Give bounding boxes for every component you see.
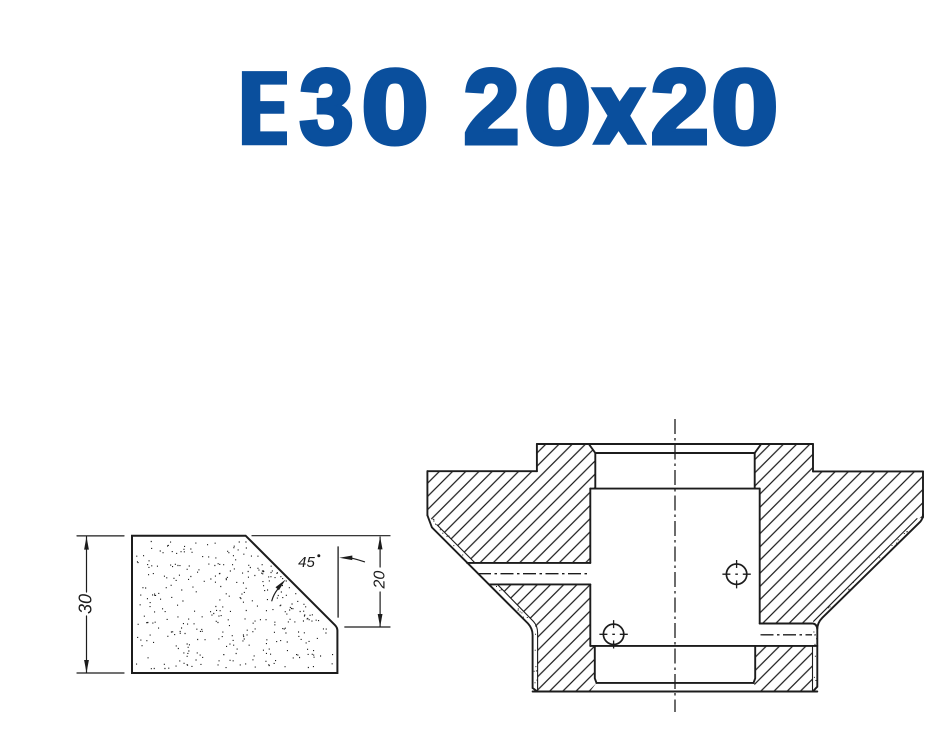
svg-text:0: 0	[712, 48, 779, 166]
svg-text:0: 0	[362, 48, 429, 166]
svg-text:20: 20	[371, 571, 388, 590]
svg-text:0: 0	[524, 48, 591, 166]
svg-text:30: 30	[75, 594, 95, 614]
svg-text:2: 2	[464, 48, 519, 166]
svg-text:3: 3	[300, 49, 354, 166]
svg-text:2: 2	[651, 49, 709, 167]
svg-text:45: 45	[298, 554, 315, 571]
